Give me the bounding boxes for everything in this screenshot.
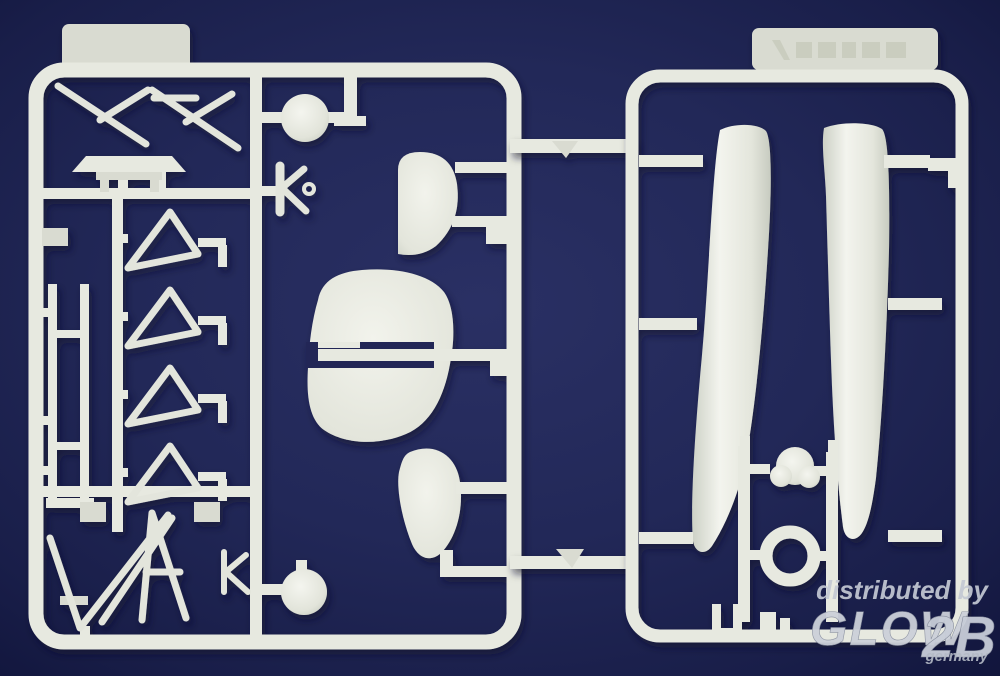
sprue-photo: distributed by GLOW 2B germany bbox=[0, 0, 1000, 676]
spreader-top bbox=[72, 156, 186, 172]
watermark-prefix: distributed by bbox=[816, 575, 989, 605]
engine-lump-right bbox=[798, 466, 820, 488]
sprue-photo-svg: distributed by GLOW 2B germany bbox=[0, 0, 1000, 676]
cowl-disc bbox=[281, 94, 329, 142]
watermark: distributed by GLOW 2B germany bbox=[810, 575, 996, 670]
watermark-country: germany bbox=[924, 648, 988, 665]
engine-lump-left bbox=[770, 465, 792, 487]
wheel-disc bbox=[281, 569, 327, 615]
